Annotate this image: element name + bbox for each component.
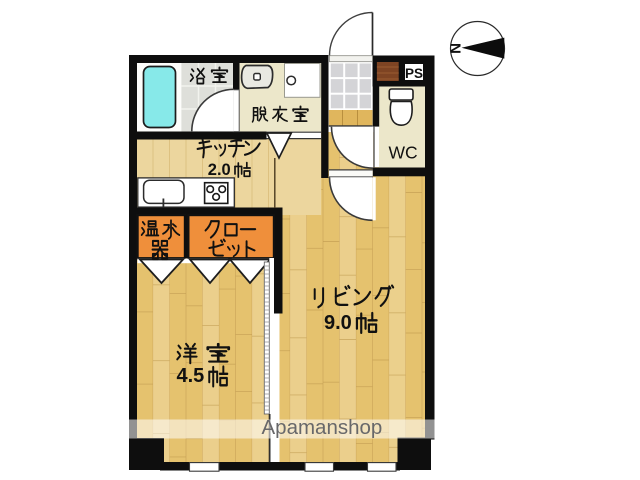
svg-text:4.5: 4.5 <box>177 365 205 387</box>
svg-text:Apamanshop: Apamanshop <box>262 416 383 439</box>
svg-text:WC: WC <box>389 143 418 163</box>
svg-text:2.0: 2.0 <box>208 161 231 179</box>
svg-text:PS: PS <box>405 66 423 81</box>
svg-text:9.0: 9.0 <box>324 312 352 334</box>
svg-text:N: N <box>447 43 464 54</box>
